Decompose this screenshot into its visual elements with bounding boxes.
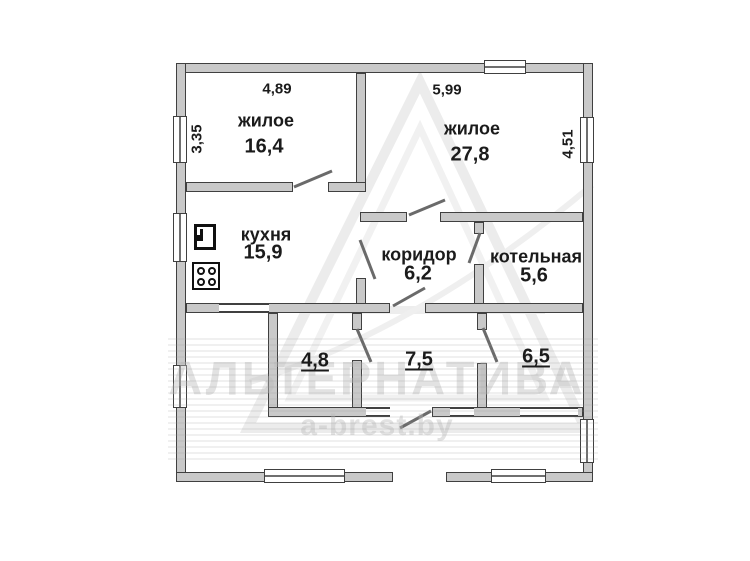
door-living1 (294, 171, 332, 187)
door-boiler (469, 233, 480, 263)
fridge-icon (194, 224, 216, 250)
burner-icon (197, 278, 205, 286)
burner-icon (197, 267, 205, 275)
room-kitchen-area: 15,9 (244, 242, 283, 265)
room-living1-name: жилое (238, 111, 294, 132)
room-75-area: 7,5 (405, 349, 433, 372)
room-boiler-area: 5,6 (520, 265, 548, 288)
door-kitchen (360, 240, 375, 279)
room-48-area: 4,8 (301, 350, 329, 373)
burner-icon (208, 267, 216, 275)
room-65-area: 6,5 (522, 346, 550, 369)
room-corridor-area: 6,2 (404, 263, 432, 286)
dim-living1-height: 3,35 (189, 124, 206, 153)
watermark-site: a-brest.by (300, 409, 453, 443)
stove-icon (192, 262, 220, 290)
door-living2 (409, 200, 445, 215)
dim-living1-width: 4,89 (262, 81, 291, 98)
dim-living2-width: 5,99 (432, 82, 461, 99)
room-living2-area: 27,8 (451, 144, 490, 167)
burner-icon (208, 278, 216, 286)
dim-living2-height: 4,51 (560, 129, 577, 158)
room-living1-area: 16,4 (245, 136, 284, 159)
room-living2-name: жилое (444, 119, 500, 140)
floor-plan: 4,89 3,35 жилое 16,4 5,99 4,51 жилое 27,… (0, 0, 750, 561)
door-corridor-lower (393, 288, 425, 306)
door-leaves (0, 0, 750, 561)
